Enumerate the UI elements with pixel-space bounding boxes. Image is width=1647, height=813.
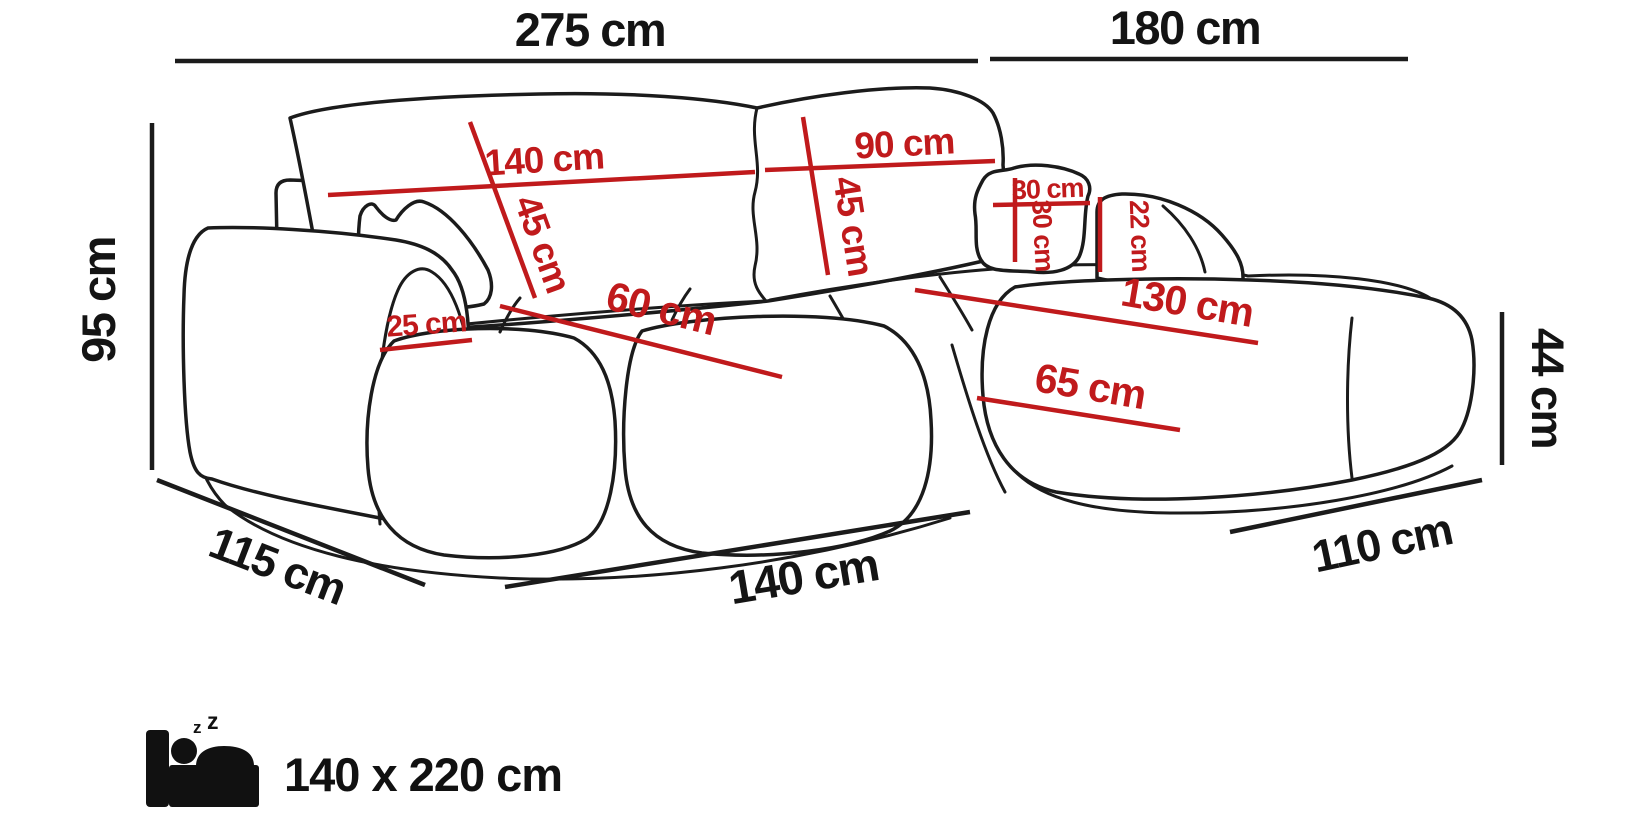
depth-left-label: 115 cm: [203, 516, 353, 614]
sleep-z-small: z: [193, 718, 202, 737]
right-armrest-height-label: 22 cm: [1124, 199, 1156, 272]
total-width-right-label: 180 cm: [1110, 1, 1260, 54]
seat-height-label: 44 cm: [1522, 328, 1573, 448]
sleep-z-large: z: [207, 708, 219, 734]
pillow-height-label: 30 cm: [1026, 199, 1060, 272]
backrest-left-width-label: 140 cm: [483, 135, 605, 183]
sleeper-head: [171, 738, 197, 764]
seat-cushion-right: [624, 316, 932, 555]
total-width-left-label: 275 cm: [515, 3, 665, 56]
sleeping-area-label: 140 x 220 cm: [284, 748, 562, 801]
sofa-drawing: [183, 88, 1474, 579]
sleeper-body: [196, 746, 254, 766]
seat-tuft-seam-2: [940, 277, 972, 330]
backrest-right-width-label: 90 cm: [853, 120, 955, 166]
seat-cushion-left: [367, 328, 616, 557]
left-armrest-width-label: 25 cm: [385, 305, 467, 344]
total-height-label: 95 cm: [72, 237, 125, 363]
sleeping-area: z z 140 x 220 cm: [146, 708, 562, 807]
sofa-dimension-diagram: 140 cm 45 cm 90 cm 45 cm 30 cm 30 cm 22 …: [0, 0, 1647, 813]
sleeping-bed-icon: z z: [146, 708, 259, 807]
right-armrest: [1097, 194, 1243, 285]
diagram-canvas: 140 cm 45 cm 90 cm 45 cm 30 cm 30 cm 22 …: [0, 0, 1647, 813]
front-width-chaise-label: 110 cm: [1307, 503, 1456, 582]
bed-mattress: [169, 765, 259, 807]
bed-headboard: [146, 730, 169, 807]
